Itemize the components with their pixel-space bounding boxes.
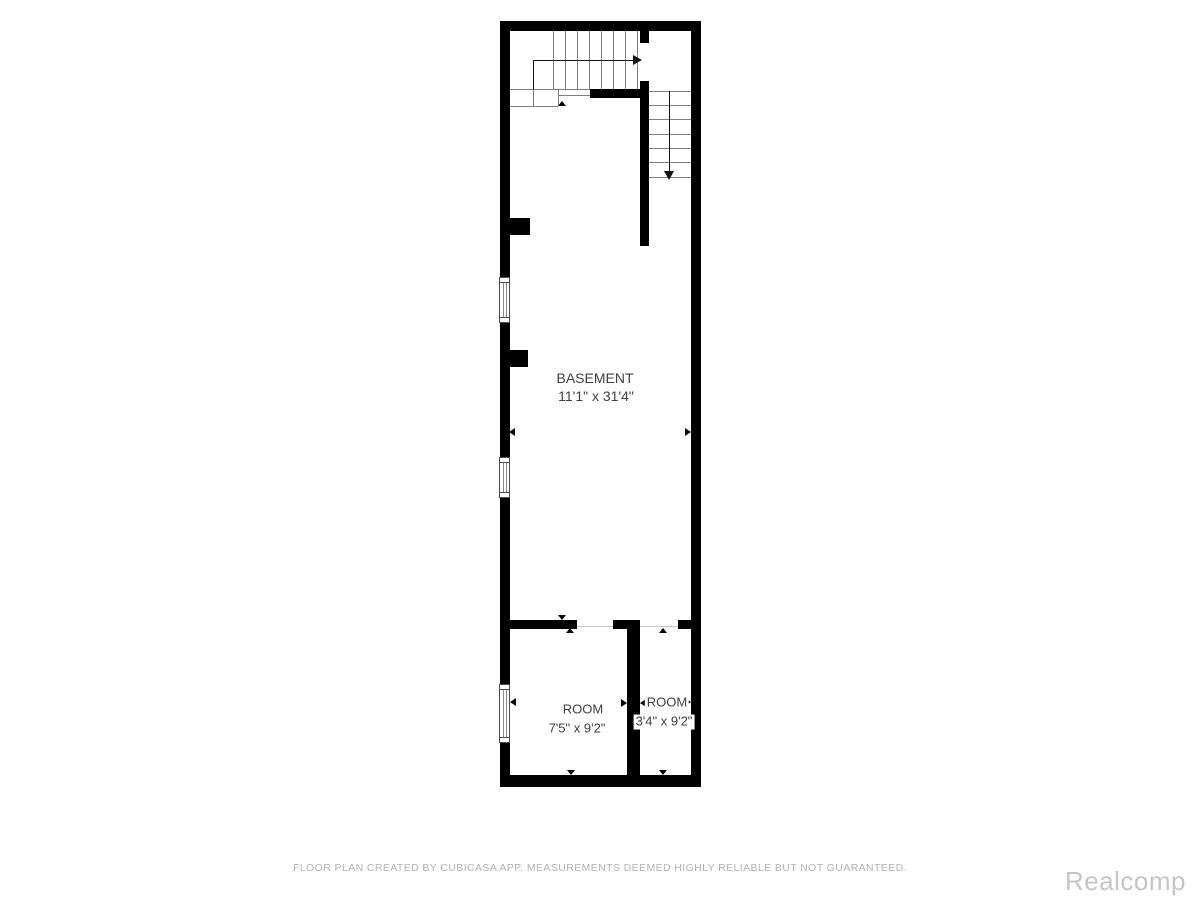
stair-down-arrow-shaft [669, 91, 670, 172]
stair-landing-line [510, 106, 558, 107]
wall-marker-triangle-icon [621, 699, 627, 707]
wall-pilaster [510, 350, 528, 367]
arrow-down-icon [664, 171, 674, 180]
stair-landing-line [510, 89, 590, 90]
outer-wall-left-segment [500, 322, 510, 458]
stair-up-arrow-shaft [533, 60, 634, 61]
room-divider-wall [627, 620, 640, 775]
room-label-basement: BASEMENT [554, 370, 635, 386]
outer-wall-left-segment [500, 21, 510, 278]
stair-tread [649, 119, 691, 120]
window-icon [499, 457, 510, 498]
opening-marker-triangle-icon [659, 770, 667, 775]
window-icon [499, 684, 510, 743]
stair-up-arrow-shaft [533, 60, 534, 90]
wall-marker-triangle-icon [509, 428, 515, 436]
room-dims-basement: 11'1" x 31'4" [556, 388, 636, 404]
outer-wall-left-segment [500, 742, 510, 787]
room-label-left: ROOM [561, 703, 605, 718]
stair-start-triangle-icon [558, 101, 566, 106]
opening-marker-triangle-icon [566, 628, 574, 633]
outer-wall-top [500, 21, 701, 31]
window-pane [503, 690, 507, 737]
interior-wall-right-segment [678, 620, 701, 629]
arrow-right-icon [633, 55, 642, 65]
stair-tread [649, 105, 691, 106]
stair-half-wall [590, 89, 649, 98]
stair-tread [649, 91, 691, 92]
outer-wall-bottom [500, 775, 701, 787]
room-dims-left: 7'5" x 9'2" [547, 722, 608, 737]
opening-marker-triangle-icon [558, 615, 566, 620]
wall-marker-triangle-icon [685, 428, 691, 436]
window-cap [500, 492, 509, 493]
window-pane [503, 283, 507, 317]
chimney-block [510, 218, 530, 235]
stair-wall-top-stub [640, 31, 649, 43]
stair-landing-line [533, 89, 534, 106]
stair-tread [649, 162, 691, 163]
room-dims-right: 3'4" x 9'2" [634, 715, 695, 730]
room-label-right: ROOM [645, 696, 689, 711]
door-opening-line [577, 626, 613, 627]
wall-marker-triangle-icon [510, 698, 516, 706]
window-icon [499, 277, 510, 323]
stair-tread [649, 148, 691, 149]
stair-landing-line [558, 95, 590, 96]
floor-plan-page: BASEMENT 11'1" x 31'4" ROOM 7'5" x 9'2" … [0, 0, 1200, 900]
outer-wall-right [691, 21, 701, 787]
outer-wall-left-segment [500, 497, 510, 685]
opening-marker-triangle-icon [567, 770, 575, 775]
window-pane [503, 463, 507, 492]
stair-wall [640, 81, 649, 246]
door-opening-line [640, 626, 678, 627]
realcomp-watermark: Realcomp [1065, 866, 1186, 897]
stair-tread [649, 134, 691, 135]
window-cap [500, 737, 509, 738]
window-cap [500, 317, 509, 318]
footer-disclaimer: FLOOR PLAN CREATED BY CUBICASA APP. MEAS… [0, 862, 1200, 874]
opening-marker-triangle-icon [659, 628, 667, 633]
